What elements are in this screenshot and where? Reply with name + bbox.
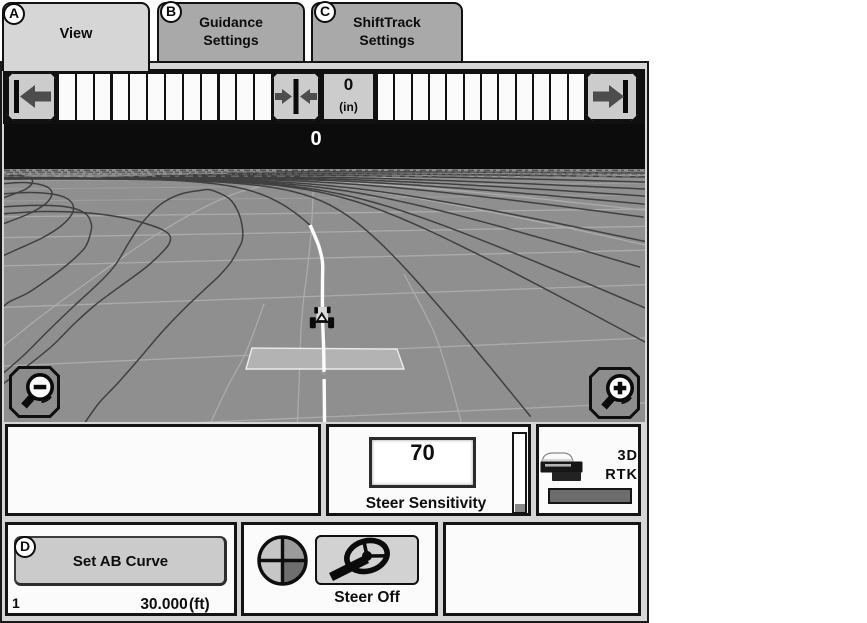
svg-text:0: 0 <box>310 128 321 150</box>
